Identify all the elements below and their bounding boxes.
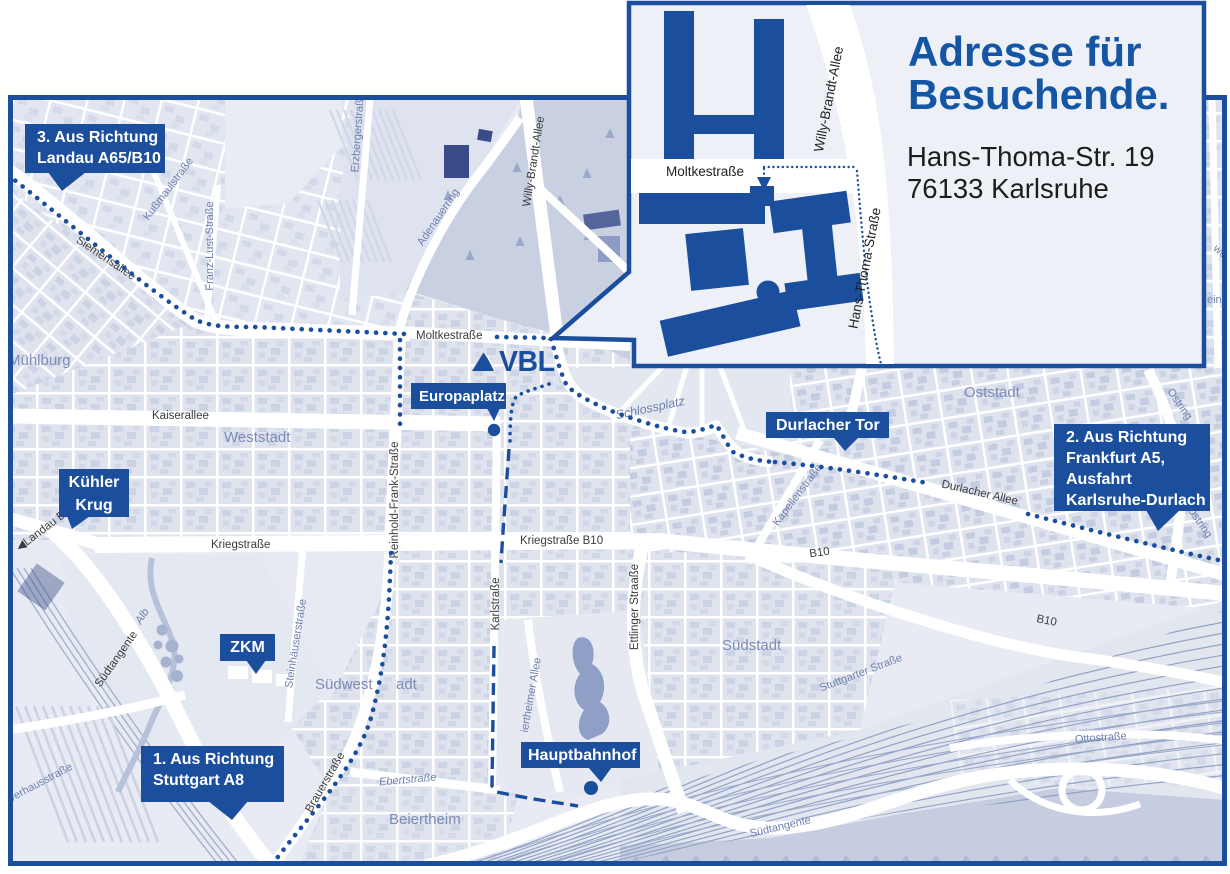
svg-text:Durlacher Tor: Durlacher Tor [776,417,880,434]
svg-text:Ettlinger Straaße: Ettlinger Straaße [629,564,641,650]
svg-text:adt: adt [396,676,418,693]
svg-text:1. Aus Richtung: 1. Aus Richtung [153,751,274,768]
svg-text:76133 Karlsruhe: 76133 Karlsruhe [907,173,1109,204]
svg-text:Adresse für: Adresse für [908,28,1141,75]
svg-text:Kaiserallee: Kaiserallee [152,410,209,422]
svg-text:Frankfurt A5,: Frankfurt A5, [1066,450,1165,467]
svg-text:Moltkestraße: Moltkestraße [666,164,744,179]
svg-text:2. Aus Richtung: 2. Aus Richtung [1066,429,1187,446]
svg-text:Weststadt: Weststadt [224,429,291,446]
svg-text:Hauptbahnhof: Hauptbahnhof [528,747,637,764]
svg-text:Europaplatz: Europaplatz [419,388,505,405]
svg-text:Landau A65/B10: Landau A65/B10 [37,150,161,167]
svg-text:Kriegstraße: Kriegstraße [211,539,270,551]
svg-text:Beiertheim: Beiertheim [389,811,461,828]
svg-text:ZKM: ZKM [230,639,265,656]
svg-text:Moltkestraße: Moltkestraße [416,330,482,342]
svg-text:3. Aus Richtung: 3. Aus Richtung [37,129,158,146]
svg-text:VBL: VBL [499,346,555,378]
svg-text:Karlstraße: Karlstraße [490,577,502,630]
svg-text:Besuchende.: Besuchende. [908,71,1169,118]
svg-text:Südwest: Südwest [315,676,373,693]
svg-text:Kriegstraße B10: Kriegstraße B10 [520,535,603,547]
svg-text:ein: ein [1207,294,1222,306]
svg-text:Krug: Krug [75,497,112,514]
svg-text:Reinhold-Frank-Straße: Reinhold-Frank-Straße [389,442,401,559]
svg-text:Südstadt: Südstadt [722,637,782,654]
svg-text:Oststadt: Oststadt [964,384,1021,401]
svg-text:Franz-Lust-Straße: Franz-Lust-Straße [204,201,216,290]
svg-text:Kühler: Kühler [69,474,120,491]
svg-text:Stuttgart A8: Stuttgart A8 [153,772,244,789]
svg-text:Hans-Thoma-Str. 19: Hans-Thoma-Str. 19 [907,141,1155,172]
svg-text:Mühlburg: Mühlburg [8,352,71,369]
svg-text:Ausfahrt: Ausfahrt [1066,471,1132,488]
svg-text:Karlsruhe-Durlach: Karlsruhe-Durlach [1066,492,1206,509]
